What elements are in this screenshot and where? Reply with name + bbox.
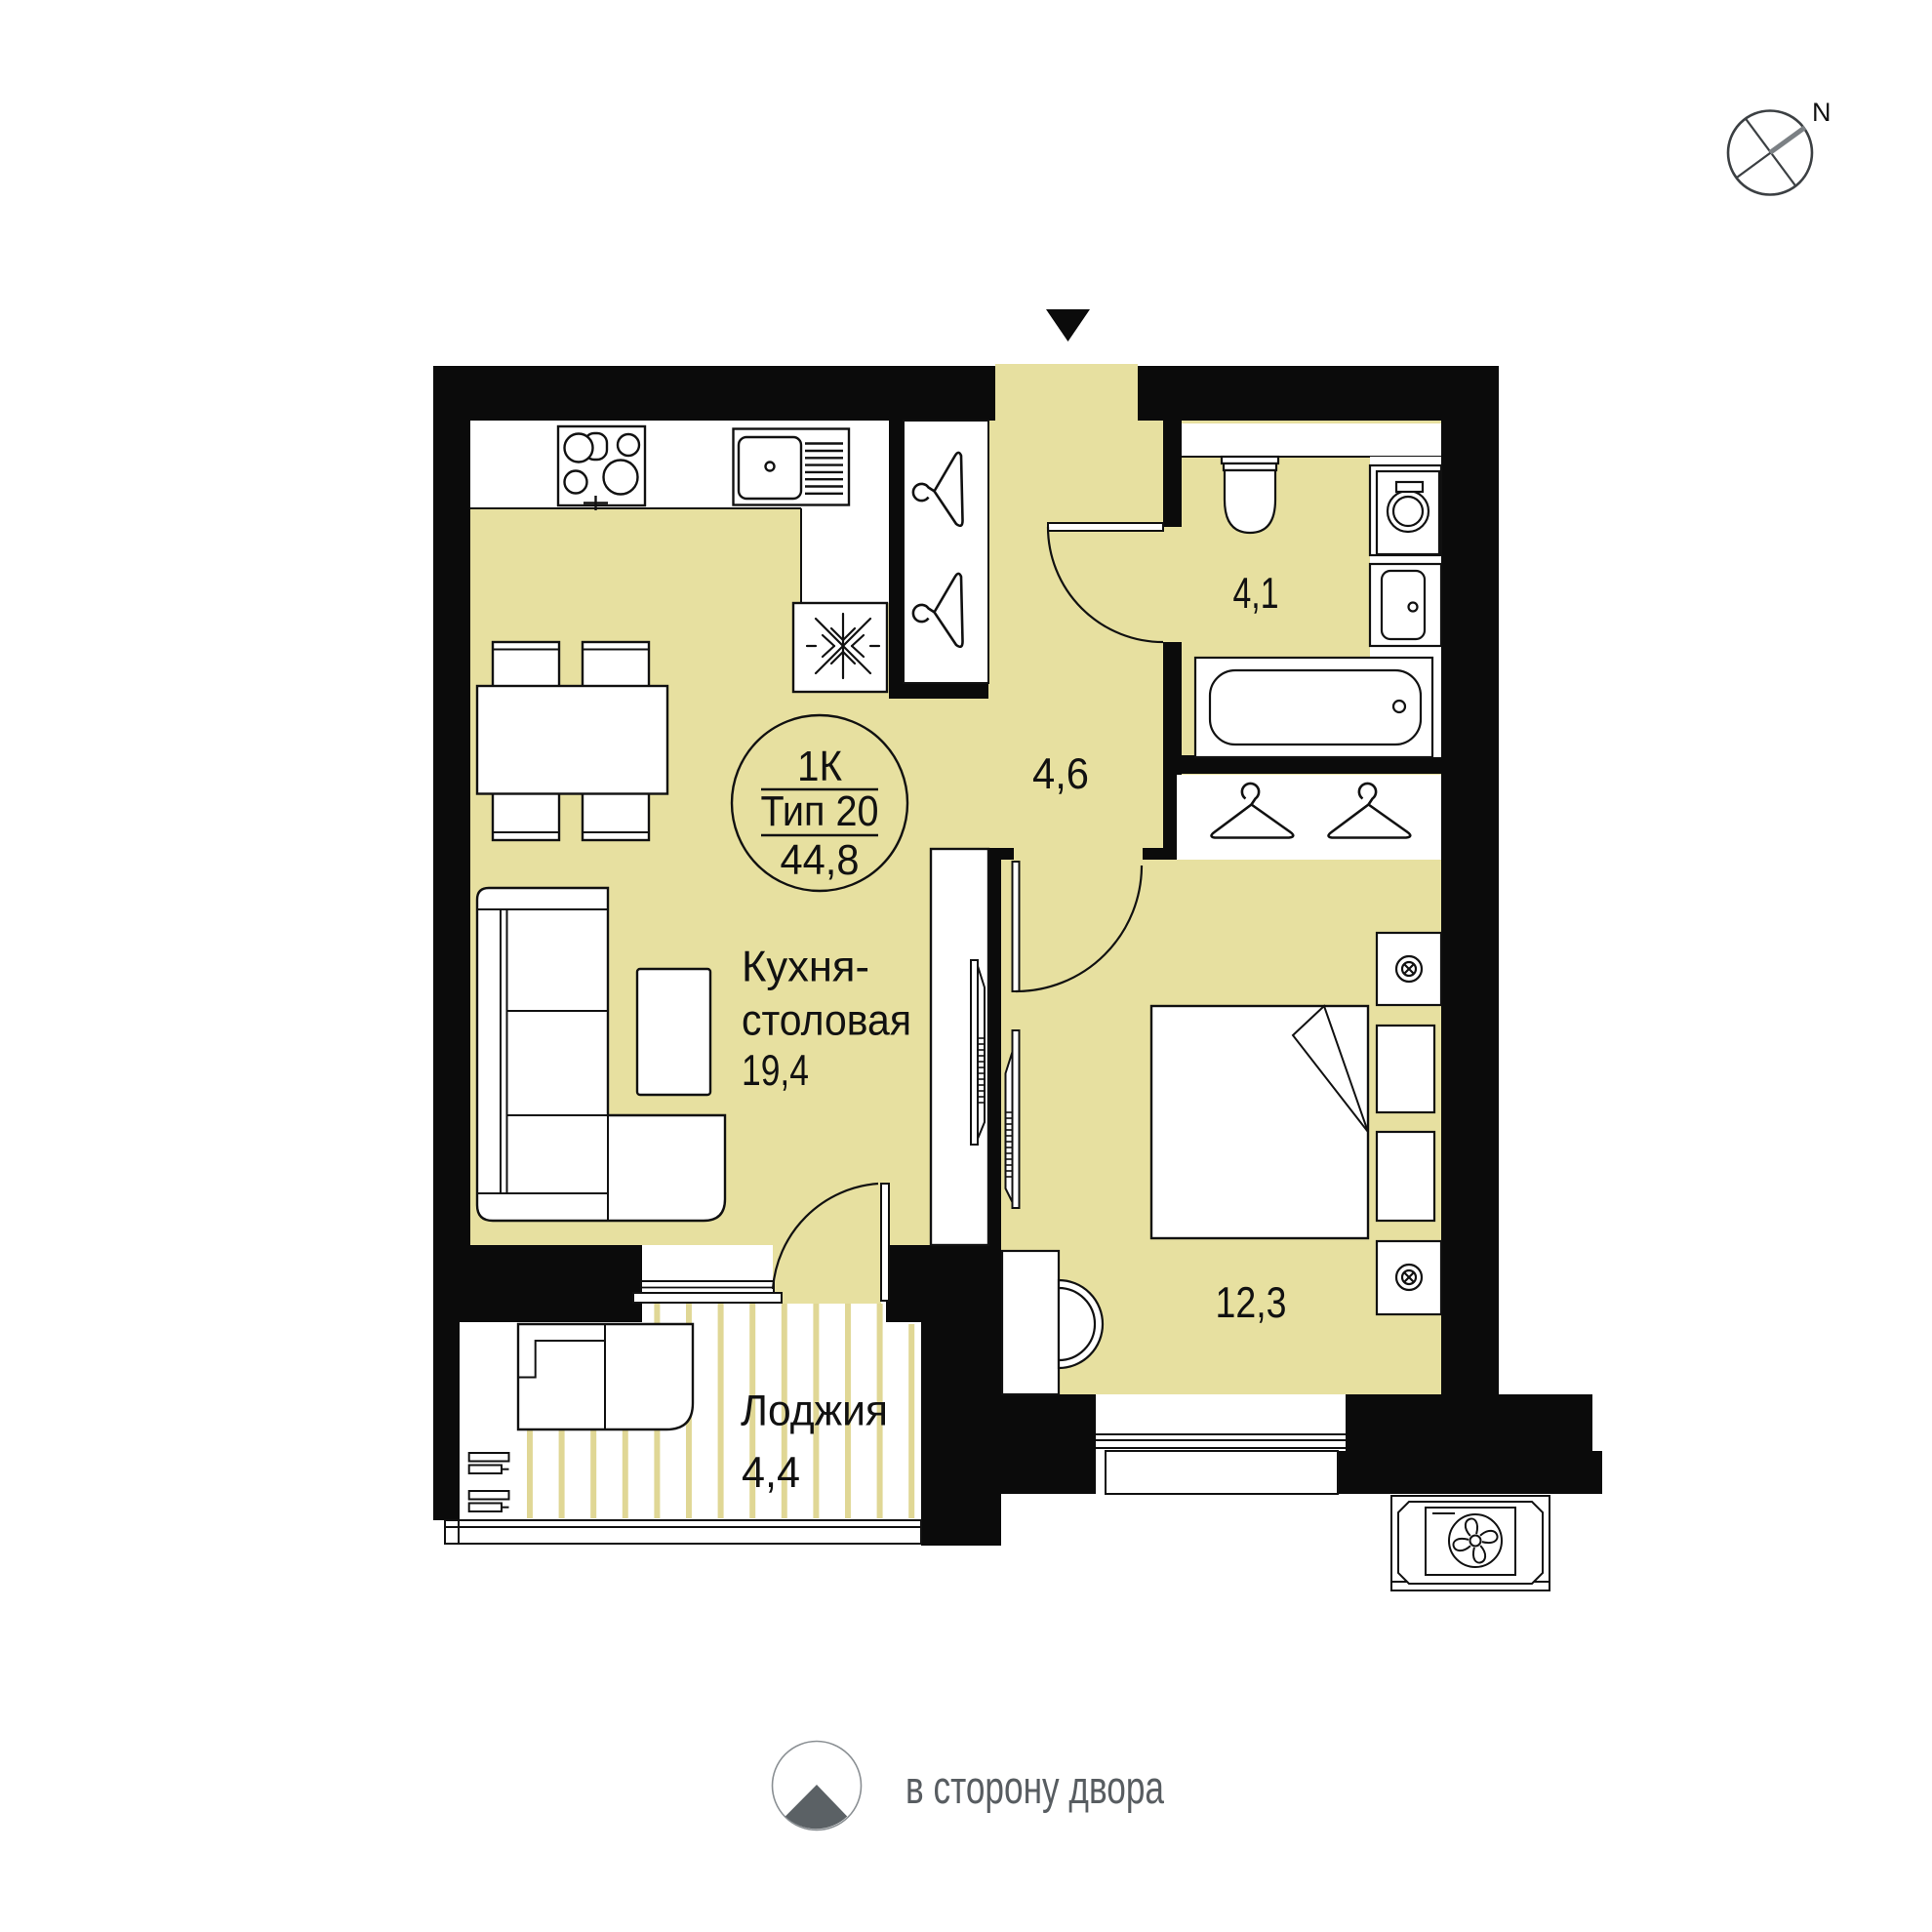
svg-text:Кухня-: Кухня- [742,944,869,991]
svg-text:19,4: 19,4 [742,1047,809,1095]
svg-text:12,3: 12,3 [1216,1279,1287,1327]
svg-text:44,8: 44,8 [781,836,860,884]
svg-text:Лоджия: Лоджия [741,1388,888,1435]
svg-text:1К: 1К [797,743,842,790]
svg-text:4,4: 4,4 [742,1449,800,1497]
svg-text:в сторону двора: в сторону двора [906,1761,1165,1813]
svg-text:4,6: 4,6 [1032,750,1089,798]
svg-text:4,1: 4,1 [1233,570,1279,618]
svg-text:столовая: столовая [742,997,911,1045]
svg-text:Тип 20: Тип 20 [761,787,879,835]
svg-text:N: N [1812,98,1831,127]
